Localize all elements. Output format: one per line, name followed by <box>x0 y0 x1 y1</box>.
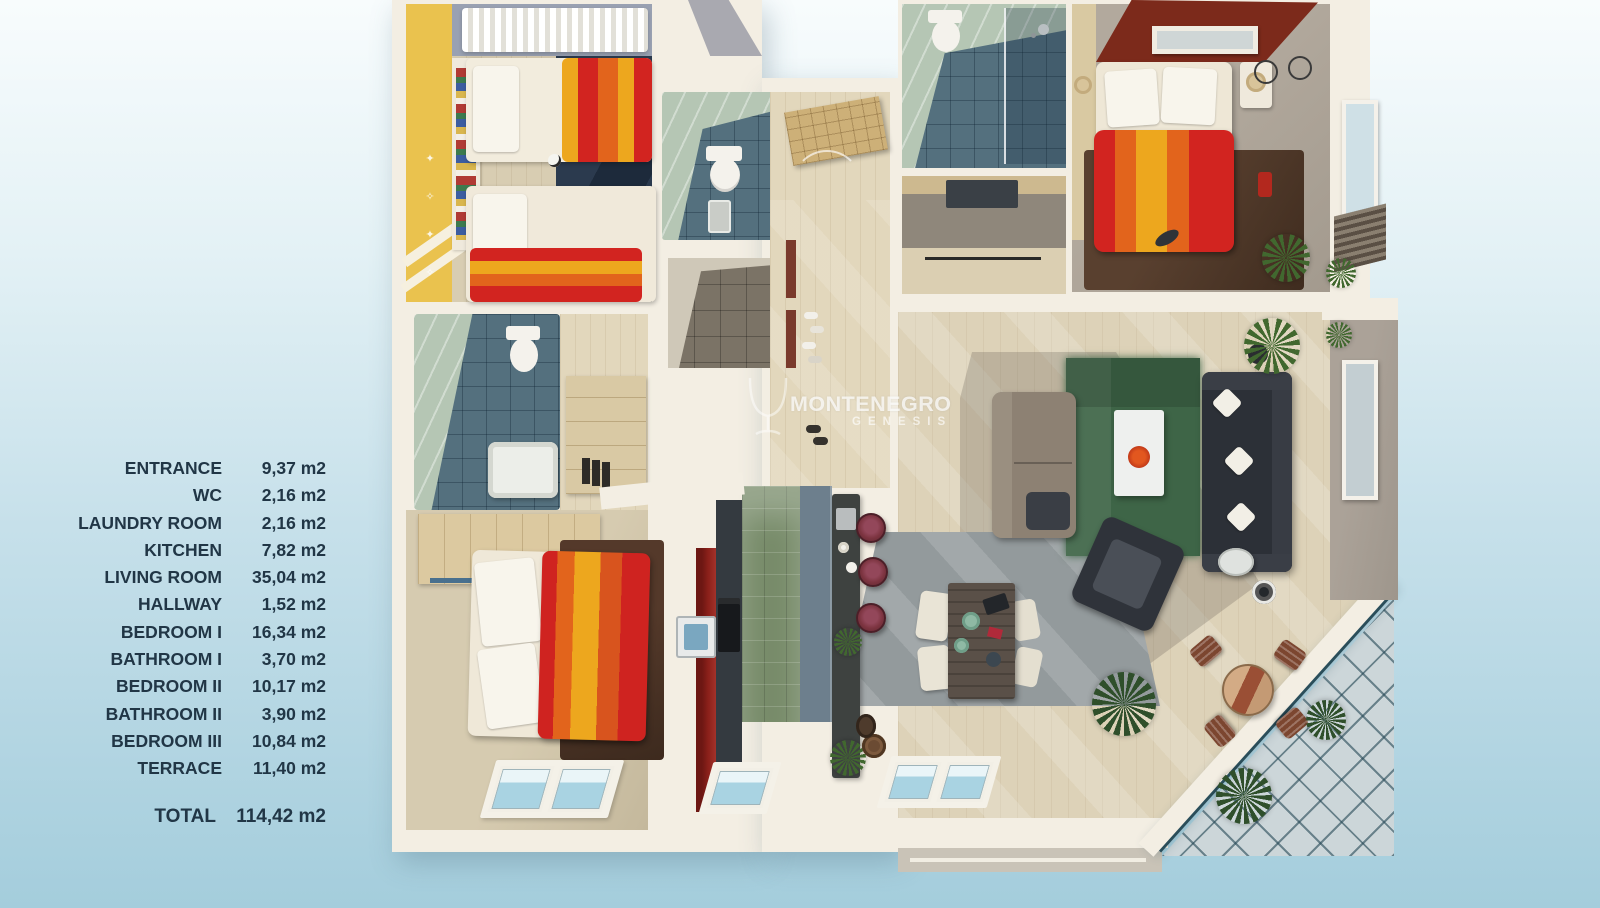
light-switches <box>582 458 590 484</box>
wall-bike <box>1254 60 1278 84</box>
floor-speaker <box>1252 580 1276 604</box>
legend-row: TERRACE11,40 m2 <box>60 755 326 782</box>
shower-head <box>1038 24 1049 35</box>
room-area: 16,34 m2 <box>222 619 326 646</box>
room-label: ENTRANCE <box>60 455 222 482</box>
room-area: 9,37 m2 <box>222 455 326 482</box>
legend-row: HALLWAY1,52 m2 <box>60 591 326 618</box>
laundry-counter-slot <box>925 257 1041 260</box>
legend-row: LIVING ROOM35,04 m2 <box>60 564 326 591</box>
corner-plant <box>1244 318 1300 374</box>
floor-vase <box>856 714 876 738</box>
bay-plant <box>1326 258 1356 288</box>
room-area: 2,16 m2 <box>222 510 326 537</box>
door-swing-arc <box>792 150 862 220</box>
bowl <box>986 652 1001 667</box>
curtain <box>462 8 648 52</box>
potted-plant <box>1262 234 1310 282</box>
room-label: BEDROOM I <box>60 619 222 646</box>
wc-sink <box>708 200 731 233</box>
legend-row: WC2,16 m2 <box>60 482 326 509</box>
room-label: BATHROOM II <box>60 701 222 728</box>
football <box>548 154 561 167</box>
plate <box>962 612 980 630</box>
laundry-counter <box>902 248 1066 294</box>
legend-row: BEDROOM II10,17 m2 <box>60 673 326 700</box>
terrace-table <box>1222 664 1274 716</box>
bed-striped-blanket <box>562 58 652 162</box>
bathtub <box>488 442 558 498</box>
indoor-palm <box>1092 672 1156 736</box>
washing-machine <box>946 180 1018 208</box>
fridge-panel <box>800 486 832 722</box>
table-lamp <box>1074 76 1092 94</box>
legend-total: TOTAL 114,42 m2 <box>60 803 326 831</box>
room-label: LAUNDRY ROOM <box>60 510 222 537</box>
room-area: 11,40 m2 <box>222 755 326 782</box>
window-pane <box>706 768 773 808</box>
plate <box>954 638 969 653</box>
wall-bike-wheel <box>1288 56 1312 80</box>
bottom-wall <box>892 818 1168 848</box>
bed-pillow <box>473 66 519 152</box>
toilet-bowl <box>932 20 960 52</box>
room-area: 35,04 m2 <box>222 564 326 591</box>
sink-basin <box>684 624 708 650</box>
watermark: MONTENEGRO GENESIS <box>742 372 1002 442</box>
loveseat-cushion-line <box>1014 462 1072 464</box>
watermark-brand: MONTENEGRO <box>790 392 951 417</box>
room-area: 10,17 m2 <box>222 673 326 700</box>
bay-window-frame <box>1342 360 1378 500</box>
room-label: BEDROOM III <box>60 728 222 755</box>
bar-stool <box>856 603 886 633</box>
room-label: KITCHEN <box>60 537 222 564</box>
room-legend: ENTRANCE9,37 m2 WC2,16 m2 LAUNDRY ROOM2,… <box>60 455 326 783</box>
watermark-glass-icon <box>742 376 794 438</box>
bar-stool <box>856 513 886 543</box>
terrace-palm <box>1216 768 1272 824</box>
bed-striped-blanket <box>538 551 651 742</box>
room-area: 1,52 m2 <box>222 591 326 618</box>
bay-plant <box>1326 322 1352 348</box>
sofa-back <box>1272 372 1292 572</box>
herb-plant <box>834 628 862 656</box>
legend-row: BEDROOM III10,84 m2 <box>60 728 326 755</box>
bed-pillow <box>1161 67 1218 126</box>
room-area: 7,82 m2 <box>222 537 326 564</box>
bed-pillow <box>1104 68 1160 127</box>
wall-picture-frame <box>1152 26 1258 54</box>
room-area: 10,84 m2 <box>222 728 326 755</box>
room-area: 3,90 m2 <box>222 701 326 728</box>
loveseat-dark-cushion <box>1026 492 1070 530</box>
legend-row: LAUNDRY ROOM2,16 m2 <box>60 510 326 537</box>
room-label: LIVING ROOM <box>60 564 222 591</box>
side-table <box>1218 548 1254 576</box>
bed-pillow <box>477 642 546 729</box>
floor-plant <box>830 740 866 776</box>
legend-row: KITCHEN7,82 m2 <box>60 537 326 564</box>
room-label: BATHROOM I <box>60 646 222 673</box>
fire-extinguisher <box>1258 172 1272 197</box>
bed-striped-blanket <box>470 248 642 302</box>
shoe-rack <box>786 240 796 298</box>
total-label: TOTAL <box>60 803 216 831</box>
room-label: HALLWAY <box>60 591 222 618</box>
table-flowers <box>1128 446 1150 468</box>
legend-row: BATHROOM II3,90 m2 <box>60 701 326 728</box>
room-area: 2,16 m2 <box>222 482 326 509</box>
room-label: WC <box>60 482 222 509</box>
sofa-armrest <box>1202 372 1292 390</box>
watermark-sub: GENESIS <box>852 416 952 428</box>
total-area: 114,42 m2 <box>216 803 326 831</box>
room-label: BEDROOM II <box>60 673 222 700</box>
room-area: 3,70 m2 <box>222 646 326 673</box>
terrace-palm <box>1306 700 1346 740</box>
stove <box>718 598 740 652</box>
toilet-bowl <box>510 338 538 372</box>
coffee-cup <box>838 542 849 553</box>
bar-stool <box>858 557 888 587</box>
room-label: TERRACE <box>60 755 222 782</box>
hall-wardrobe <box>566 376 646 494</box>
bed-pillow <box>474 557 542 647</box>
legend-row: ENTRANCE9,37 m2 <box>60 455 326 482</box>
wall-stars: ✦✧✦✧ <box>412 140 448 290</box>
espresso-machine <box>836 508 856 530</box>
floor-plan-poster: ENTRANCE9,37 m2 WC2,16 m2 LAUNDRY ROOM2,… <box>0 0 1600 908</box>
shoes <box>804 312 818 319</box>
legend-row: BEDROOM I16,34 m2 <box>60 619 326 646</box>
shower-glass <box>1004 8 1066 164</box>
kitchen-tile-wall <box>742 486 800 722</box>
legend-row: BATHROOM I3,70 m2 <box>60 646 326 673</box>
toilet-bowl <box>710 158 740 192</box>
balcony-rail <box>910 858 1146 862</box>
bay-divider <box>1322 298 1398 320</box>
